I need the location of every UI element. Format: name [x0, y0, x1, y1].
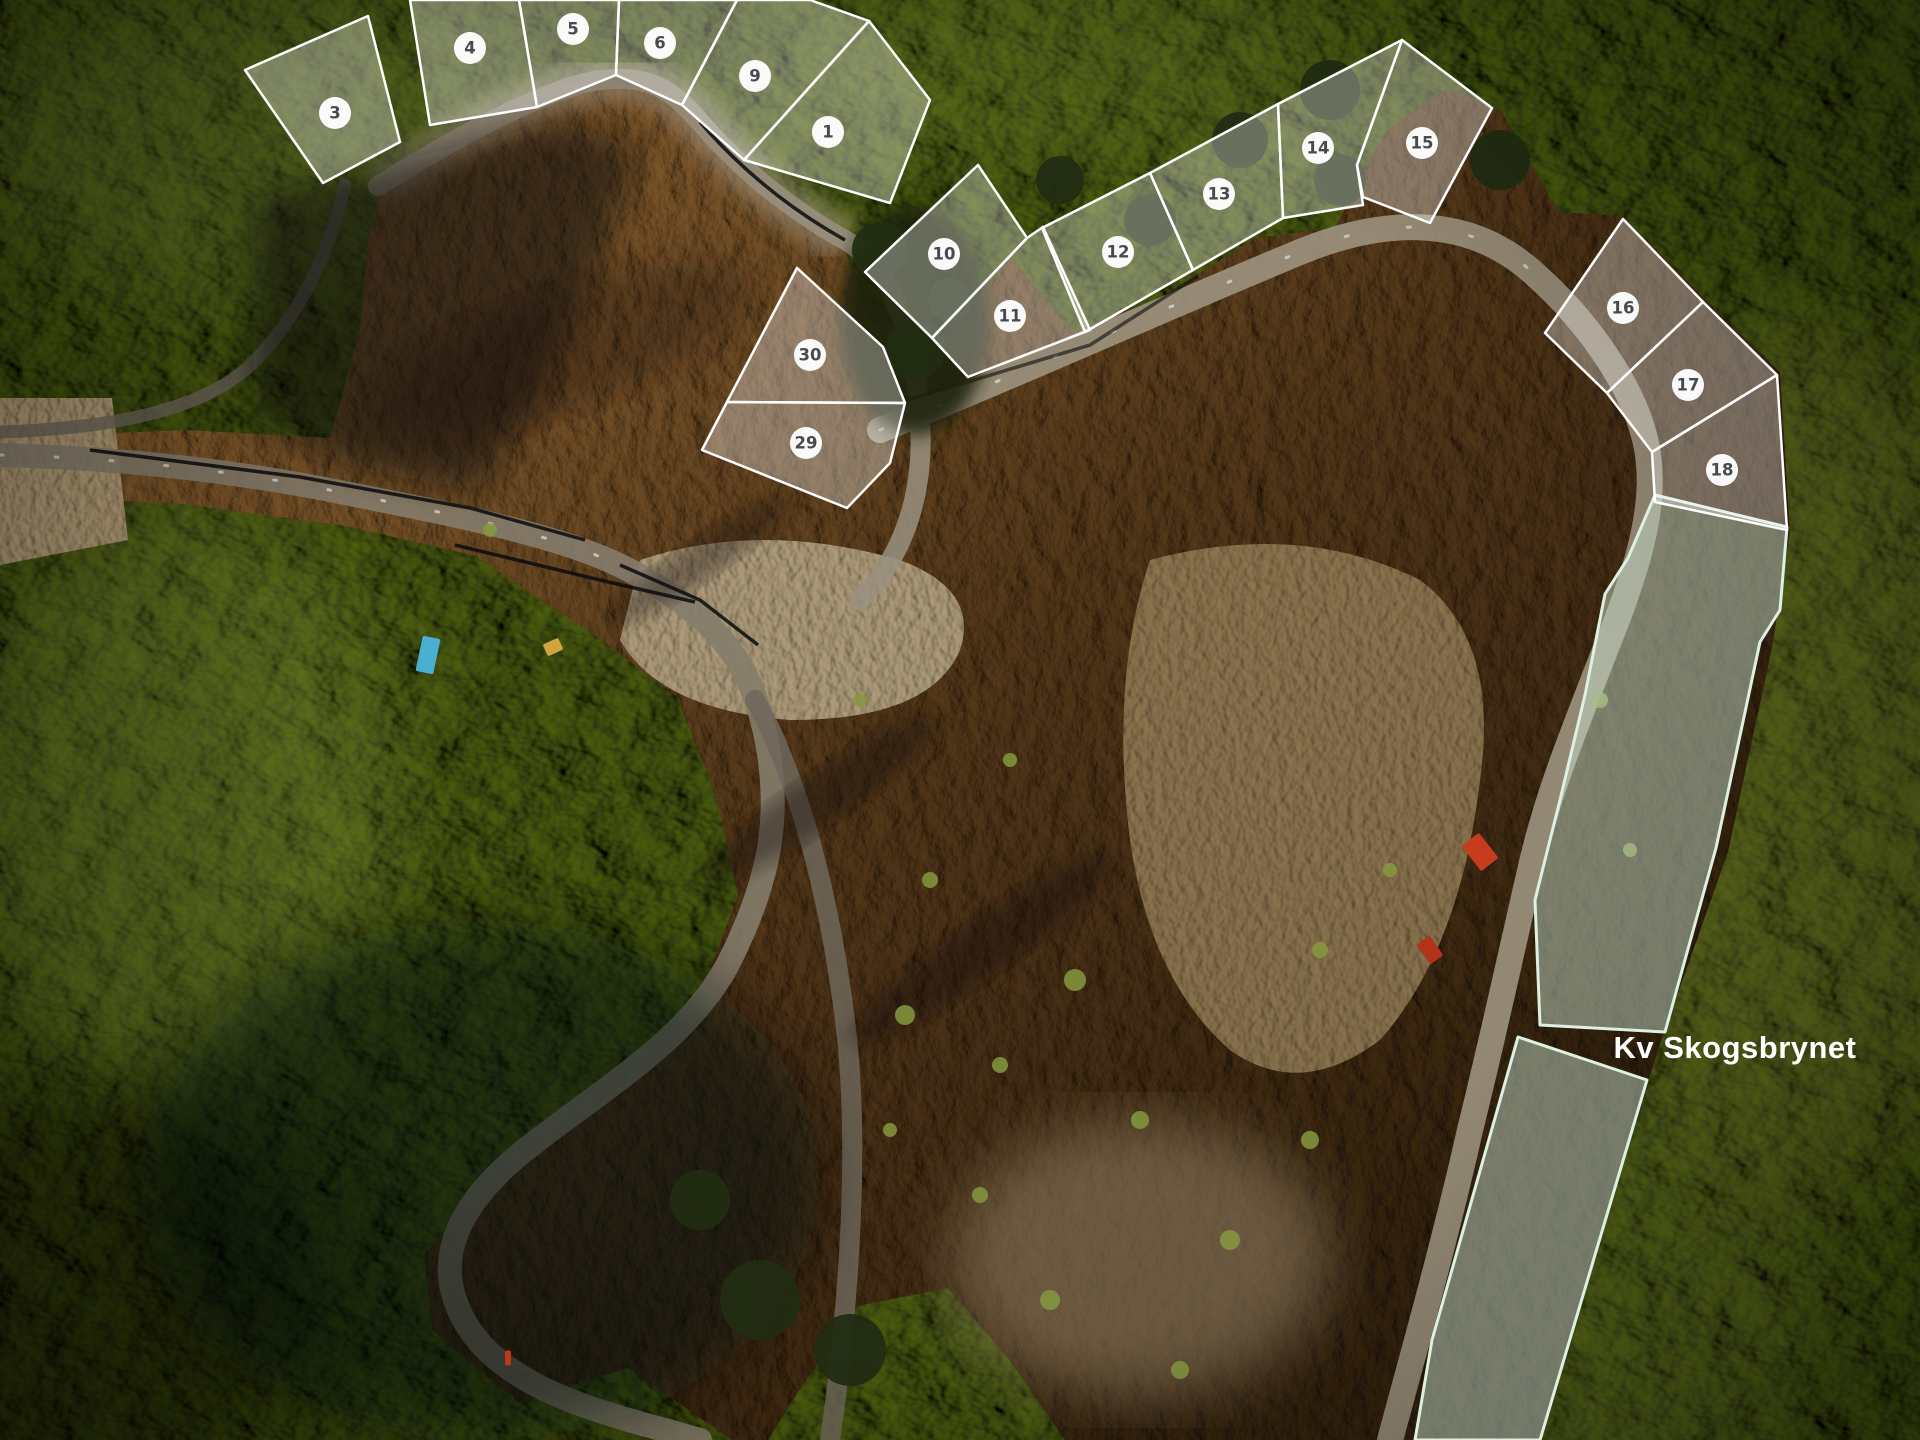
- plot-number-label: 13: [1208, 185, 1231, 204]
- plot-number-label: 12: [1107, 243, 1130, 262]
- plot-number-label: 29: [795, 434, 818, 453]
- plot-4: 4: [410, 0, 537, 125]
- plot-boundary-30[interactable]: [727, 268, 905, 403]
- plot-number-label: 4: [464, 39, 475, 58]
- aerial-site-map: 3456911011121314151617183029 Kv Skogsbry…: [0, 0, 1920, 1440]
- plot-number-label: 14: [1307, 139, 1330, 158]
- plots: 3456911011121314151617183029: [245, 0, 1787, 530]
- reserved-area-kv-skogsbrynet-south[interactable]: [1415, 1037, 1647, 1440]
- plot-number-label: 11: [999, 307, 1022, 326]
- plot-number-label: 5: [567, 20, 578, 39]
- plot-overlay: 3456911011121314151617183029 Kv Skogsbry…: [0, 0, 1920, 1440]
- reserved-areas: [1415, 495, 1787, 1440]
- plot-number-label: 9: [749, 67, 760, 86]
- plot-number-label: 17: [1677, 376, 1700, 395]
- plot-boundary-3[interactable]: [245, 16, 400, 183]
- plot-number-label: 1: [822, 123, 833, 142]
- plot-number-label: 15: [1411, 134, 1434, 153]
- plot-number-label: 3: [329, 104, 340, 123]
- plot-5: 5: [519, 0, 619, 107]
- plot-3: 3: [245, 16, 400, 183]
- plot-number-label: 18: [1711, 461, 1734, 480]
- area-title-label: Kv Skogsbrynet: [1613, 1030, 1856, 1065]
- plot-number-label: 30: [799, 346, 822, 365]
- plot-number-label: 6: [654, 34, 665, 53]
- plot-30: 30: [727, 268, 905, 403]
- plot-number-label: 10: [933, 245, 956, 264]
- reserved-area-kv-skogsbrynet-north[interactable]: [1535, 495, 1787, 1032]
- plot-29: 29: [702, 402, 905, 508]
- plot-number-label: 16: [1612, 299, 1635, 318]
